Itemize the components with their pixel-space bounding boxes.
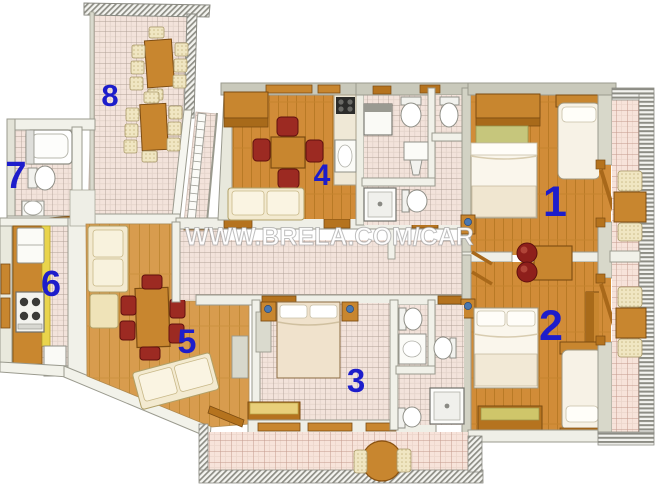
svg-text:4: 4 bbox=[314, 159, 331, 192]
svg-text:1: 1 bbox=[543, 178, 567, 226]
svg-text:7: 7 bbox=[5, 155, 26, 197]
svg-text:2: 2 bbox=[539, 302, 563, 350]
svg-text:6: 6 bbox=[41, 263, 61, 304]
svg-text:3: 3 bbox=[347, 362, 365, 399]
svg-text:8: 8 bbox=[101, 78, 118, 113]
svg-text:WWW.BRELA.COM/CAR: WWW.BRELA.COM/CAR bbox=[185, 223, 474, 251]
svg-text:5: 5 bbox=[178, 323, 197, 361]
